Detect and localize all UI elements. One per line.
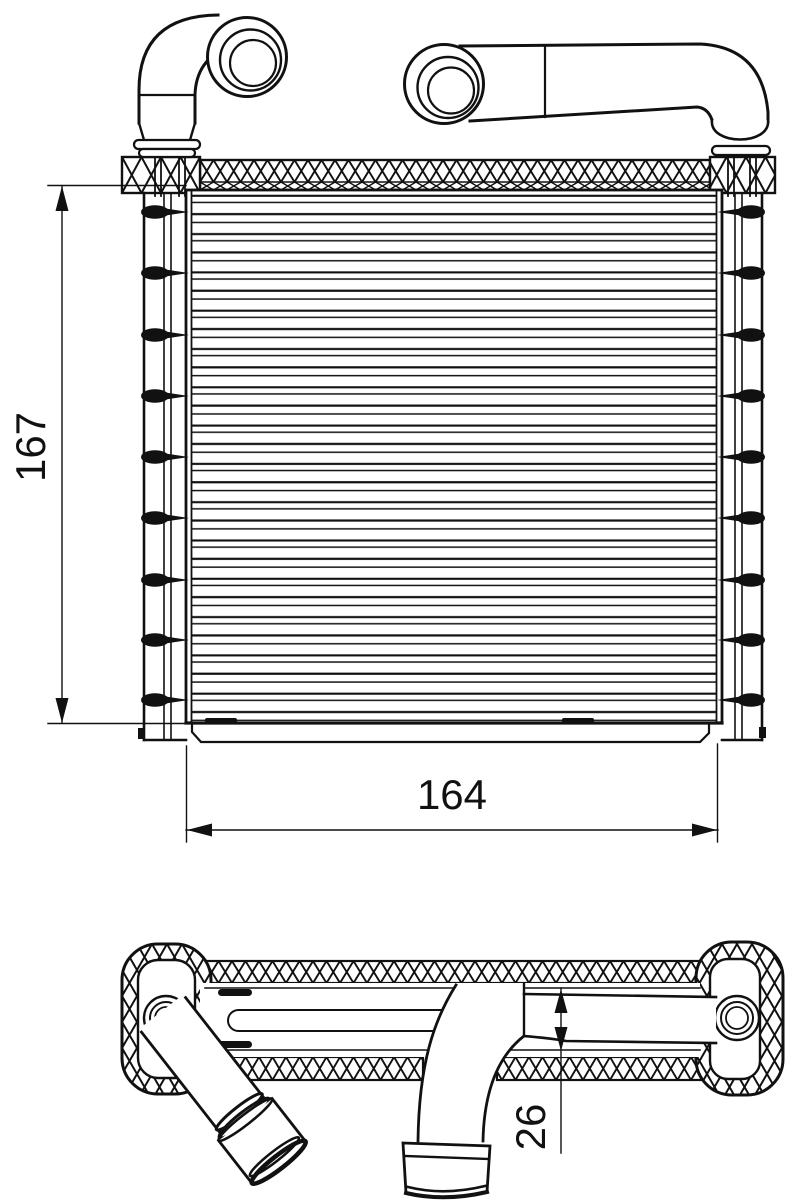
top-edge-seal-hatch xyxy=(205,961,701,983)
heater-core-body xyxy=(186,190,722,723)
drawing-sheet: 167 164 xyxy=(0,0,785,1200)
dimension-width: 164 xyxy=(186,744,718,842)
body-dash xyxy=(218,989,252,996)
arrowhead-left xyxy=(187,824,212,837)
dimension-height-label: 167 xyxy=(7,412,54,482)
top-gasket-seal xyxy=(122,157,775,193)
right-tank-profile xyxy=(710,959,760,1079)
left-side-plate xyxy=(138,193,189,740)
gasket-right-block-hatch xyxy=(710,157,775,193)
arrowhead-right xyxy=(692,824,717,837)
center-pipe-stub xyxy=(403,984,716,1197)
technical-drawing-canvas: 167 164 xyxy=(0,0,785,1200)
pipe-clamp-bead xyxy=(139,149,195,157)
tray-tab xyxy=(205,718,237,724)
arrowhead-up xyxy=(56,186,69,211)
plate-foot-notch xyxy=(138,728,145,739)
tray-outline xyxy=(192,723,709,742)
bottom-edge-seal-right-hatch xyxy=(497,1057,701,1080)
dimension-depth-label: 26 xyxy=(507,1104,554,1151)
tray-tab xyxy=(562,718,594,724)
pipe-clamp-bead xyxy=(712,146,770,155)
core-fins xyxy=(191,192,717,721)
dimension-width-label: 164 xyxy=(417,771,487,818)
front-view: 167 164 xyxy=(7,15,775,842)
top-view: 26 xyxy=(122,942,783,1197)
mounting-clips-right xyxy=(717,205,765,707)
arrowhead-down xyxy=(56,698,69,723)
mounting-clips-left xyxy=(141,205,189,707)
gasket-hatch xyxy=(200,160,710,182)
plate-foot-notch xyxy=(759,727,766,738)
pipe-clamp-bead xyxy=(134,140,200,149)
bottom-tray xyxy=(186,718,722,742)
right-side-plate xyxy=(717,193,766,740)
